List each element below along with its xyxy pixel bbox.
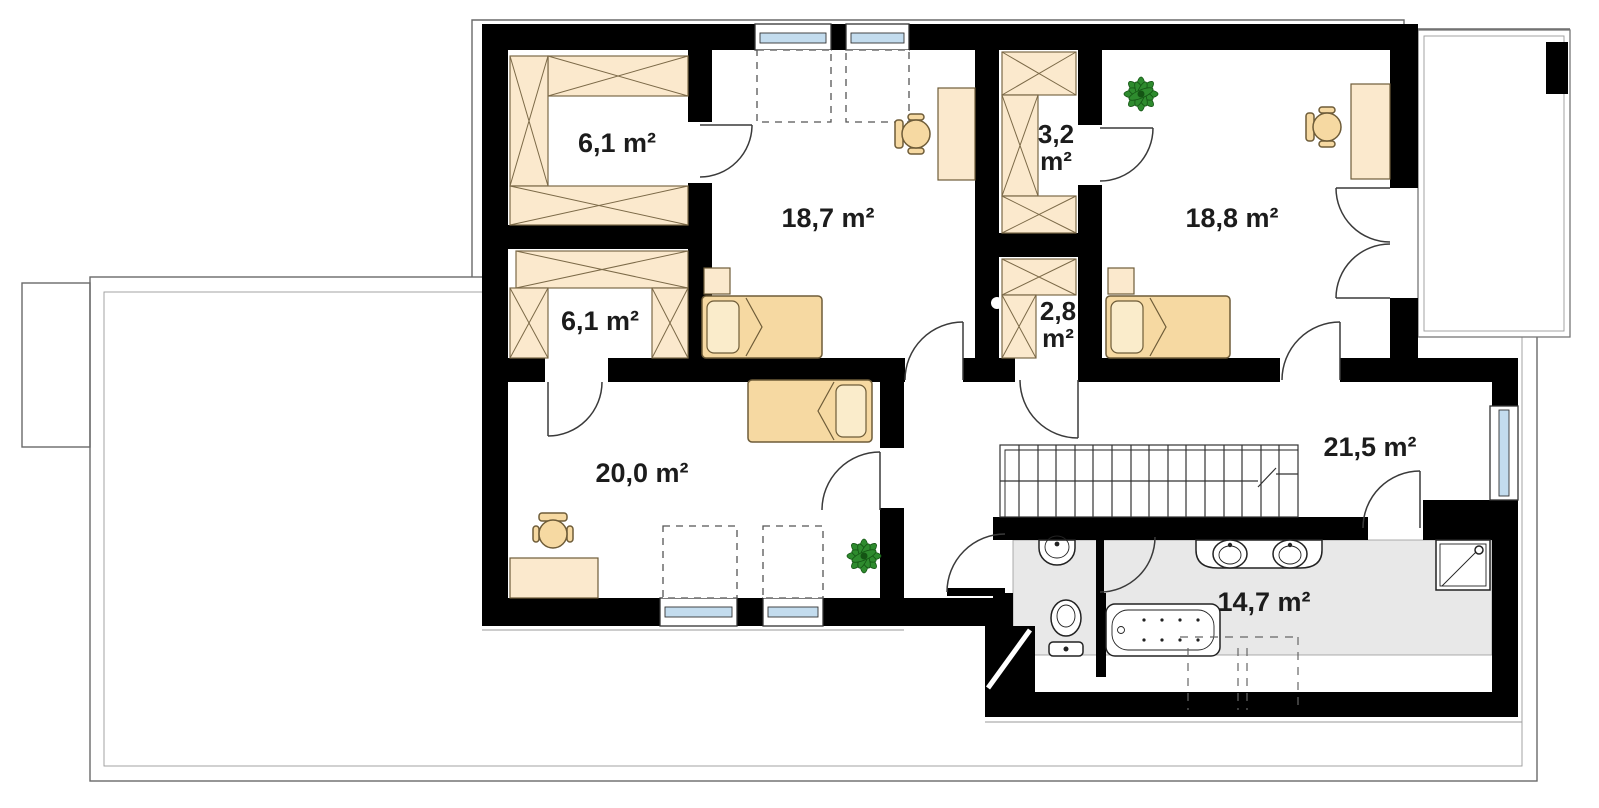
wall xyxy=(608,358,700,382)
desk-icon xyxy=(938,88,975,180)
window xyxy=(755,24,831,50)
wall xyxy=(1546,42,1568,94)
wall xyxy=(831,24,846,50)
room-label-closet-2-8: 2,8 xyxy=(1040,296,1076,326)
floor-plan-drawing: 6,1 m² 18,7 m² 3,2 m² 18,8 m² 6,1 m² 2,8… xyxy=(0,0,1599,808)
wardrobe-icon xyxy=(652,288,688,358)
wall xyxy=(482,358,545,382)
nightstand-icon xyxy=(704,268,730,294)
wall xyxy=(909,24,1418,50)
room-label-closet-3-2-unit: m² xyxy=(1040,146,1072,176)
wall xyxy=(963,358,1015,382)
roof-window xyxy=(763,526,823,598)
room-label-hall: 21,5 m² xyxy=(1323,432,1416,462)
roof-window xyxy=(757,50,831,122)
wardrobe-icon xyxy=(510,186,688,225)
wall xyxy=(1390,50,1418,188)
plant-icon xyxy=(1124,77,1158,111)
wall xyxy=(1078,185,1102,358)
wall xyxy=(688,50,712,122)
window xyxy=(763,598,823,626)
roof-window xyxy=(846,50,909,122)
wardrobe-icon xyxy=(510,288,548,358)
wardrobe-icon xyxy=(516,251,688,288)
wall xyxy=(482,225,712,249)
wall xyxy=(1492,358,1518,406)
wardrobe-icon xyxy=(510,56,548,186)
wall xyxy=(975,50,999,358)
double-sink-icon xyxy=(1196,540,1322,568)
nightstand-icon xyxy=(1108,268,1134,294)
wardrobe-icon xyxy=(1002,196,1076,233)
wall xyxy=(737,598,763,626)
wall xyxy=(482,24,508,622)
wall xyxy=(1423,500,1492,540)
room-label-closet-2-8-unit: m² xyxy=(1042,323,1074,353)
desk-icon xyxy=(1351,84,1390,179)
wardrobe-icon xyxy=(1002,259,1076,295)
wall xyxy=(482,598,660,626)
room-label-bedroom-top: 18,7 m² xyxy=(781,203,874,233)
room-label-bathroom: 14,7 m² xyxy=(1217,587,1310,617)
wall xyxy=(993,517,1368,540)
wall xyxy=(1096,593,1106,677)
balcony xyxy=(1418,30,1570,337)
wall xyxy=(1390,298,1418,358)
toilet-icon xyxy=(1049,600,1083,656)
floor-plan: 6,1 m² 18,7 m² 3,2 m² 18,8 m² 6,1 m² 2,8… xyxy=(0,0,1599,808)
wall xyxy=(1492,500,1518,717)
room-label-bedroom-left: 20,0 m² xyxy=(595,458,688,488)
window xyxy=(846,24,909,50)
wall xyxy=(999,233,1102,257)
wall xyxy=(880,382,904,448)
riser-dot xyxy=(991,297,1003,309)
wall xyxy=(1078,358,1280,382)
room-label-closet-3-2: 3,2 xyxy=(1038,119,1074,149)
roof-window xyxy=(663,526,737,598)
room-label-bedroom-right: 18,8 m² xyxy=(1185,203,1278,233)
room-label-closet-top-left: 6,1 m² xyxy=(578,128,656,158)
room-label-closet-bottom-left: 6,1 m² xyxy=(561,306,639,336)
desk-icon xyxy=(510,558,598,598)
plant-icon xyxy=(847,539,881,573)
sink-icon xyxy=(1039,536,1075,565)
window xyxy=(1490,406,1518,500)
bathtub-icon xyxy=(1106,604,1220,656)
wardrobe-icon xyxy=(1002,52,1076,95)
window xyxy=(660,598,737,626)
wall xyxy=(823,598,1013,626)
shower-icon xyxy=(1436,540,1490,590)
wall xyxy=(482,24,755,50)
wall xyxy=(700,358,905,382)
wardrobe-icon xyxy=(1002,295,1036,358)
bed-icon xyxy=(748,380,872,442)
wall xyxy=(1078,50,1102,125)
wardrobe-icon xyxy=(1002,95,1038,196)
bed-icon xyxy=(1106,296,1230,358)
wall xyxy=(985,692,1518,717)
bed-icon xyxy=(702,296,822,358)
wall xyxy=(1340,358,1518,382)
wardrobe-icon xyxy=(548,56,688,96)
